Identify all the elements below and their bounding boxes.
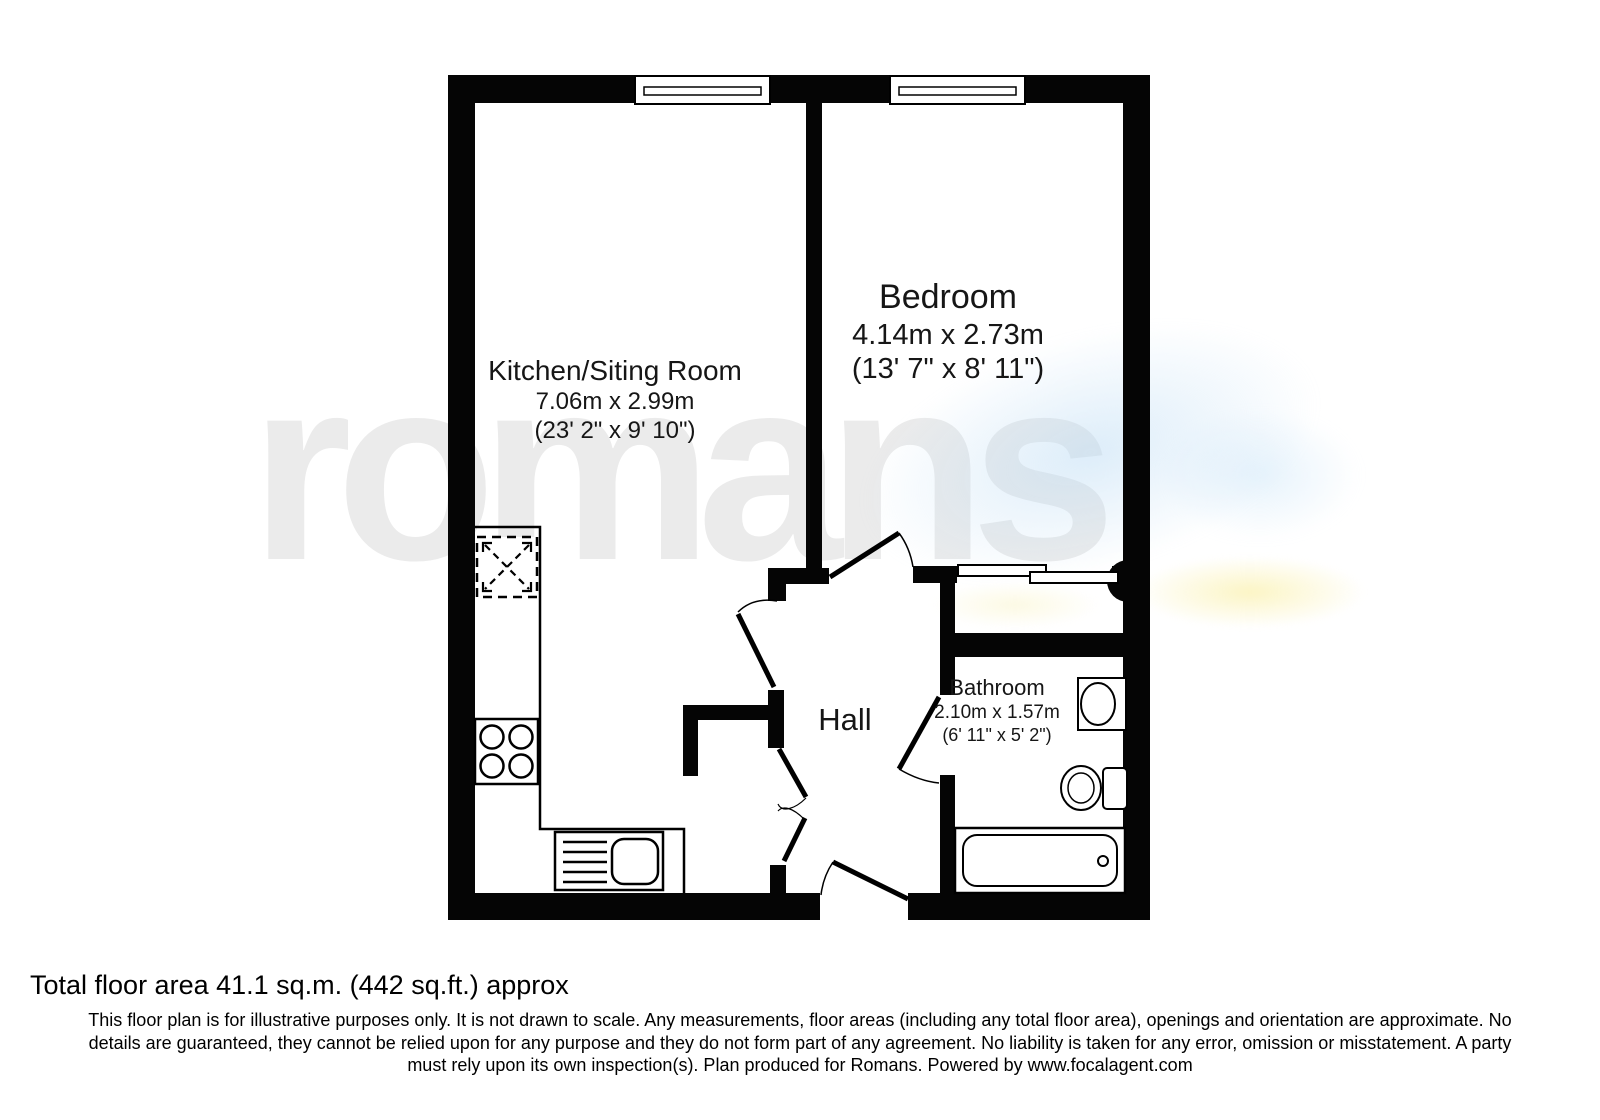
- kitchen-sink-icon: [555, 832, 663, 890]
- kitchen-window-icon: [635, 76, 770, 104]
- disclaimer-line-3: must rely upon its own inspection(s). Pl…: [0, 1054, 1600, 1077]
- entrance-door-icon: [821, 862, 908, 899]
- disclaimer-line-2: details are guaranteed, they cannot be r…: [0, 1032, 1600, 1055]
- wall-bottom-left: [448, 893, 820, 920]
- bedroom-door-icon: [830, 533, 913, 577]
- wall-kitchen-door-cap: [768, 690, 784, 748]
- bedroom-label: Bedroom 4.14m x 2.73m (13' 7" x 8' 11"): [798, 276, 1098, 386]
- bedroom-dims-imperial: (13' 7" x 8' 11"): [798, 352, 1098, 386]
- floor-plan-page: romans: [0, 0, 1600, 1120]
- kitchen-room-name: Kitchen/Siting Room: [440, 354, 790, 387]
- bathroom-room-name: Bathroom: [917, 674, 1077, 701]
- bedroom-room-name: Bedroom: [798, 276, 1098, 318]
- kitchen-label: Kitchen/Siting Room 7.06m x 2.99m (23' 2…: [440, 354, 790, 445]
- kitchen-fixtures: [475, 527, 684, 893]
- wall-hall-bottom-stub: [770, 865, 786, 895]
- wall-bathroom-top: [940, 633, 1125, 657]
- walls: [448, 75, 1150, 920]
- bathtub-icon: [955, 828, 1125, 893]
- wall-top: [448, 75, 1150, 103]
- disclaimer: This floor plan is for illustrative purp…: [0, 1009, 1600, 1077]
- wall-bathroom-left-lower: [940, 775, 955, 895]
- hob-icon: [475, 719, 538, 784]
- wall-left: [448, 75, 475, 920]
- wall-bedroom-bottom: [913, 566, 957, 583]
- appliance-space-icon: [477, 537, 537, 597]
- kitchen-door-icon: [738, 600, 777, 687]
- wall-hall-top-stub: [768, 583, 786, 601]
- disclaimer-line-1: This floor plan is for illustrative purp…: [0, 1009, 1600, 1032]
- bathroom-dims-metric: 2.10m x 1.57m: [917, 701, 1077, 724]
- basin-icon: [1078, 678, 1126, 730]
- bathroom-label: Bathroom 2.10m x 1.57m (6' 11" x 5' 2"): [917, 674, 1077, 746]
- toilet-icon: [1061, 766, 1127, 810]
- wall-bottom-right: [908, 893, 1150, 920]
- hall-label: Hall: [795, 702, 895, 738]
- bathroom-dims-imperial: (6' 11" x 5' 2"): [917, 724, 1077, 746]
- wall-hall-top: [768, 568, 829, 584]
- kitchen-dims-imperial: (23' 2" x 9' 10"): [440, 416, 790, 445]
- bedroom-window-icon: [890, 76, 1025, 104]
- floor-plan-drawing: [0, 0, 1600, 1120]
- kitchen-double-door-icon: [778, 749, 806, 861]
- wall-kitchen-hall-vertical: [683, 705, 698, 776]
- bedroom-dims-metric: 4.14m x 2.73m: [798, 318, 1098, 352]
- sliding-window-icon: [958, 565, 1118, 583]
- kitchen-dims-metric: 7.06m x 2.99m: [440, 387, 790, 416]
- total-floor-area: Total floor area 41.1 sq.m. (442 sq.ft.)…: [30, 970, 569, 1001]
